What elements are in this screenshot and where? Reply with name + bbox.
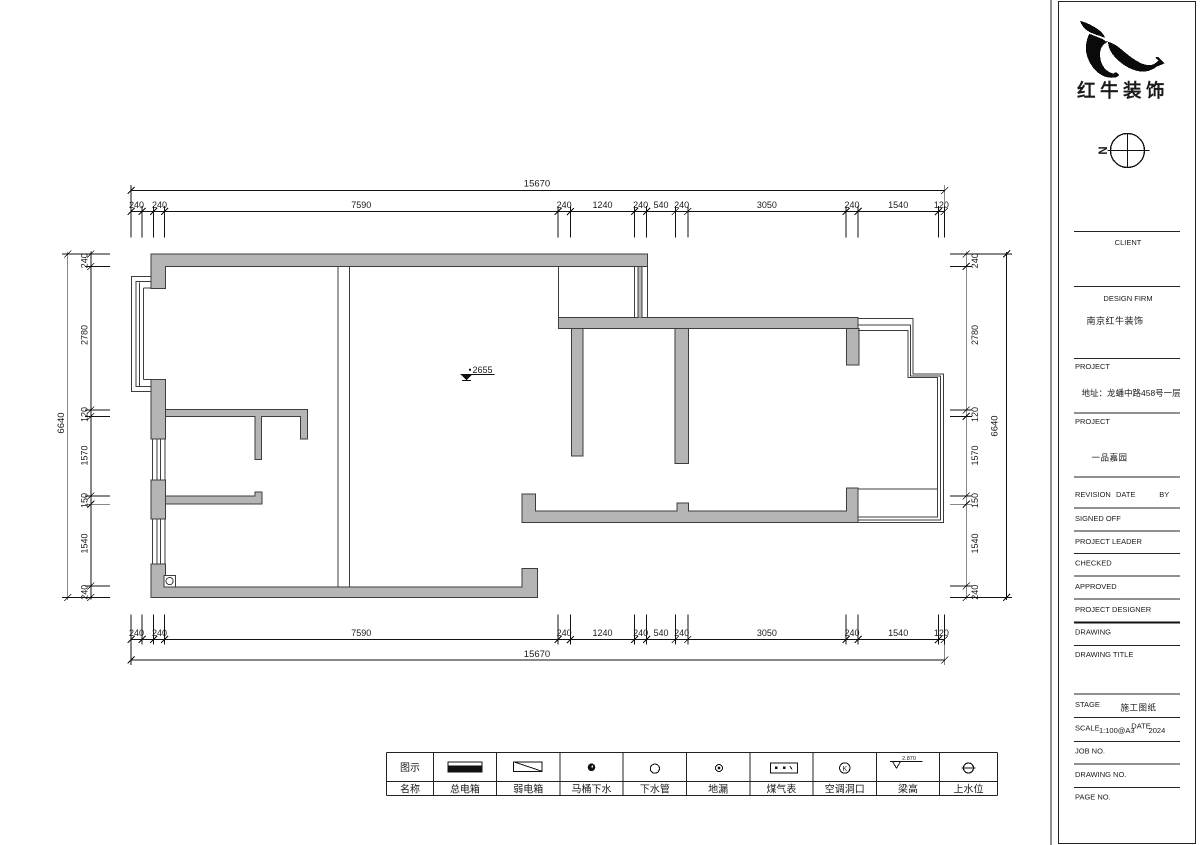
svg-text:240: 240: [152, 200, 167, 210]
svg-text:总电箱: 总电箱: [450, 782, 480, 795]
svg-text:2655: 2655: [473, 365, 493, 375]
svg-text:7590: 7590: [351, 628, 371, 638]
svg-text:图示: 图示: [400, 762, 420, 774]
svg-text:240: 240: [152, 628, 167, 638]
svg-text:名称: 名称: [400, 782, 420, 795]
svg-text:1540: 1540: [888, 628, 908, 638]
svg-text:南京红牛装饰: 南京红牛装饰: [1087, 315, 1144, 326]
svg-text:弱电箱: 弱电箱: [513, 782, 543, 795]
svg-text:DESIGN FIRM: DESIGN FIRM: [1103, 294, 1152, 303]
svg-text:N: N: [1098, 146, 1110, 154]
svg-text:1240: 1240: [592, 628, 612, 638]
svg-text:240: 240: [970, 253, 980, 268]
svg-text:240: 240: [674, 628, 689, 638]
svg-text:15670: 15670: [524, 649, 550, 660]
svg-text:2780: 2780: [970, 325, 980, 345]
svg-text:STAGE: STAGE: [1075, 700, 1100, 709]
svg-text:地址：龙蟠中路458号一层: 地址：龙蟠中路458号一层: [1082, 388, 1181, 398]
svg-text:240: 240: [80, 585, 90, 600]
svg-text:DATE: DATE: [1116, 490, 1135, 499]
svg-text:APPROVED: APPROVED: [1075, 582, 1117, 591]
svg-text:120: 120: [934, 628, 949, 638]
svg-text:PAGE NO.: PAGE NO.: [1075, 793, 1111, 802]
svg-text:3050: 3050: [757, 200, 777, 210]
svg-text:PROJECT: PROJECT: [1075, 417, 1110, 426]
svg-text:240: 240: [844, 628, 859, 638]
svg-text:PROJECT DESIGNER: PROJECT DESIGNER: [1075, 605, 1152, 614]
svg-text:3050: 3050: [757, 628, 777, 638]
svg-text:梁高: 梁高: [898, 782, 918, 795]
svg-text:空调洞口: 空调洞口: [825, 782, 865, 795]
svg-text:150: 150: [970, 493, 980, 508]
svg-text:2.870: 2.870: [902, 756, 916, 762]
svg-text:6640: 6640: [56, 412, 67, 433]
svg-text:CLIENT: CLIENT: [1115, 238, 1142, 247]
svg-text:DRAWING NO.: DRAWING NO.: [1075, 770, 1126, 779]
svg-text:DRAWING: DRAWING: [1075, 628, 1111, 637]
svg-text:SCALE: SCALE: [1075, 724, 1100, 733]
svg-text:BY: BY: [1159, 490, 1169, 499]
svg-text:240: 240: [674, 200, 689, 210]
svg-text:2780: 2780: [80, 325, 90, 345]
svg-text:150: 150: [80, 493, 90, 508]
svg-text:1:100@A3: 1:100@A3: [1099, 726, 1135, 735]
svg-text:1240: 1240: [592, 200, 612, 210]
svg-text:REVISION: REVISION: [1075, 490, 1111, 499]
svg-text:240: 240: [557, 200, 572, 210]
svg-text:PROJECT: PROJECT: [1075, 362, 1110, 371]
svg-text:红牛装饰: 红牛装饰: [1077, 80, 1169, 101]
svg-text:540: 540: [653, 200, 668, 210]
svg-text:1570: 1570: [80, 445, 90, 465]
svg-text:SIGNED OFF: SIGNED OFF: [1075, 514, 1121, 523]
svg-text:CHECKED: CHECKED: [1075, 559, 1112, 568]
svg-text:540: 540: [653, 628, 668, 638]
svg-text:马桶下水: 马桶下水: [572, 782, 612, 795]
svg-text:K: K: [842, 766, 847, 773]
svg-text:7590: 7590: [351, 200, 371, 210]
svg-text:120: 120: [80, 407, 90, 422]
svg-text:240: 240: [80, 253, 90, 268]
svg-text:240: 240: [557, 628, 572, 638]
svg-text:1540: 1540: [80, 533, 90, 553]
svg-text:15670: 15670: [524, 179, 550, 190]
svg-text:240: 240: [633, 628, 648, 638]
svg-text:地漏: 地漏: [708, 782, 728, 795]
svg-text:上水位: 上水位: [954, 782, 984, 795]
svg-text:120: 120: [934, 200, 949, 210]
svg-text:2024: 2024: [1149, 726, 1166, 735]
svg-text:PROJECT LEADER: PROJECT LEADER: [1075, 537, 1143, 546]
svg-text:施工图纸: 施工图纸: [1121, 703, 1157, 713]
svg-text:240: 240: [633, 200, 648, 210]
svg-text:JOB NO.: JOB NO.: [1075, 747, 1105, 756]
svg-text:6640: 6640: [990, 415, 1001, 436]
svg-text:下水管: 下水管: [640, 782, 670, 795]
svg-text:120: 120: [970, 407, 980, 422]
svg-text:一品嘉园: 一品嘉园: [1092, 453, 1128, 463]
svg-text:240: 240: [129, 200, 144, 210]
svg-text:1570: 1570: [970, 445, 980, 465]
svg-text:DRAWING TITLE: DRAWING TITLE: [1075, 650, 1133, 659]
svg-text:240: 240: [844, 200, 859, 210]
svg-text:1540: 1540: [970, 533, 980, 553]
svg-text:煤气表: 煤气表: [766, 782, 796, 795]
svg-text:1540: 1540: [888, 200, 908, 210]
